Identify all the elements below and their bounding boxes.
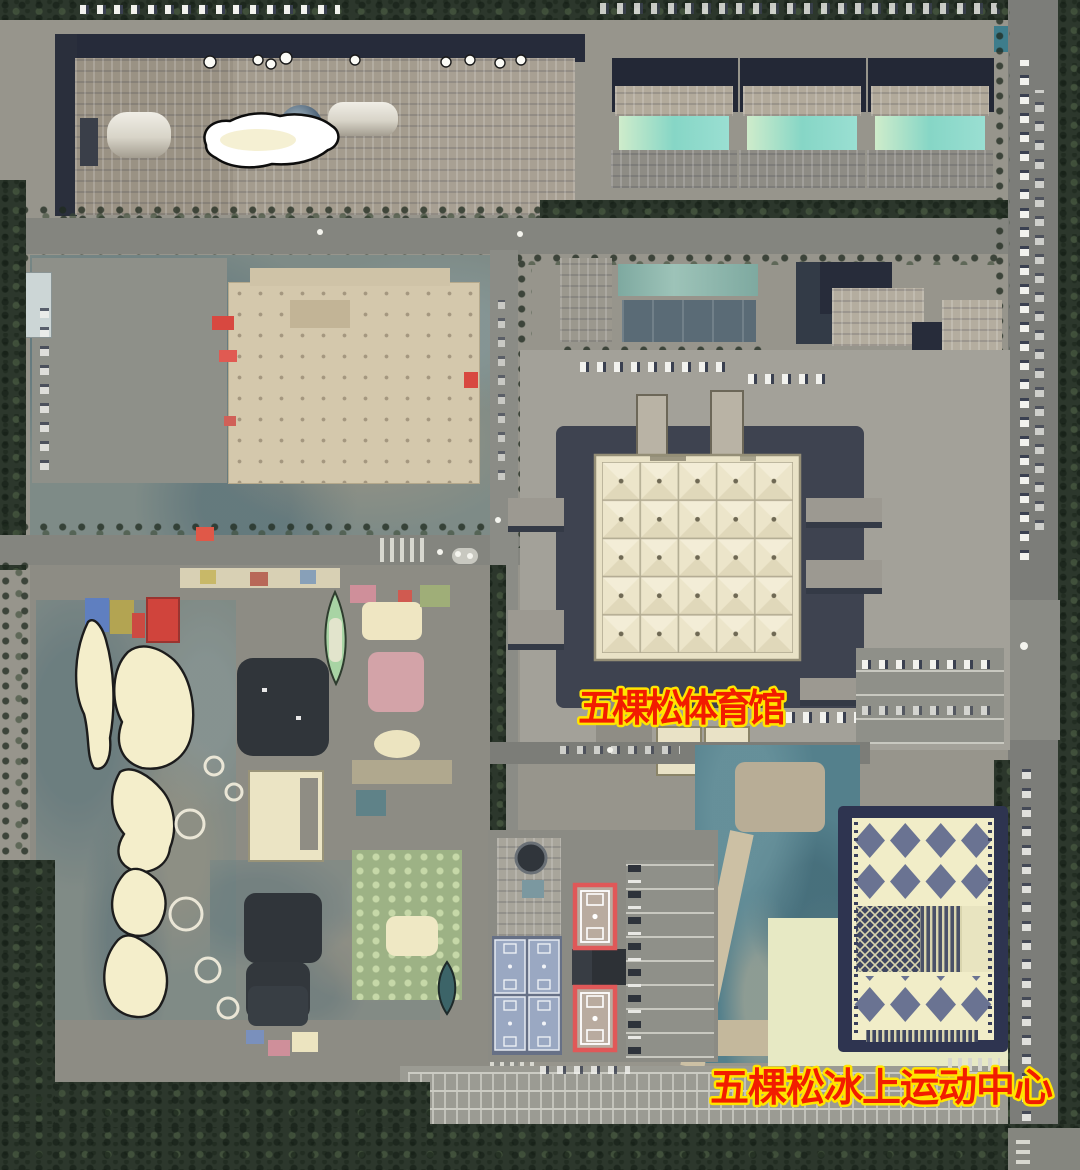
- membrane-tint: [220, 129, 296, 151]
- barrel-roof: [328, 102, 398, 136]
- label-wukesong-ice-sports-center: 五棵松冰上运动中心: [710, 1066, 1053, 1111]
- boat-deck: [329, 618, 342, 662]
- vector-overlay: 五棵松体育馆 五棵松冰上运动中心: [0, 0, 1080, 1170]
- boat-structure: [439, 962, 456, 1014]
- satellite-map: 五棵松体育馆 五棵松冰上运动中心: [0, 0, 1080, 1170]
- rooftop-tents: [204, 52, 526, 69]
- dome-roof: [516, 843, 546, 873]
- wukesong-ice-center-roof: [838, 806, 1008, 1052]
- wukesong-arena-roof: [595, 455, 800, 660]
- barrel-roof: [107, 112, 171, 158]
- basketball-courts: [492, 885, 615, 1055]
- ride-rings: [170, 757, 242, 1018]
- label-wukesong-arena: 五棵松体育馆: [578, 686, 785, 730]
